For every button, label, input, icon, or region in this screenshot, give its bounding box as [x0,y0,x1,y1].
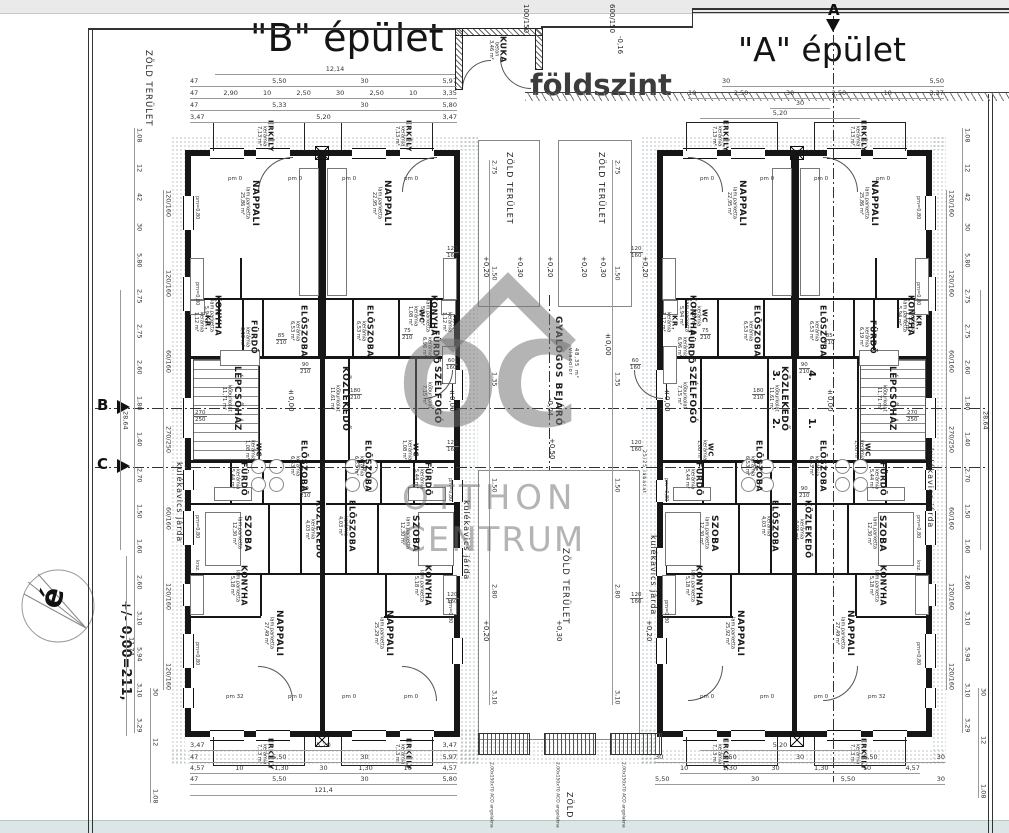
window [452,638,463,664]
dim-bottom: 160 [447,447,458,453]
dimension-value: 2,60 [136,575,143,589]
dim-bottom: 250 [907,417,918,423]
dimension-value: 121,4 [314,787,333,794]
room-area: 11,71 m² [220,366,226,431]
dimension-value: 1,30 [274,765,288,772]
aco-label: 2,00x150x70 ACO angolakna [620,762,625,828]
door-arc [462,60,491,89]
north-letter: é [33,583,72,612]
property-boundary [692,8,693,28]
room-label: KÖZLEKEDŐkerámia4,03 m² [792,500,813,559]
room-label: FÜRDŐkerámia5,44 m² [683,462,704,496]
dimension-value: 5,20 [316,114,330,121]
room-label: ERKÉLYkerámia7,13 m² [710,120,730,152]
parapet-label: pm 0 [760,176,774,182]
parapet-label: pm 0 [228,176,242,182]
room-area: 1,08 m² [243,440,249,460]
room-area: 1,08 m² [852,440,858,460]
dimension-value: 60/160 [165,507,172,530]
opening-dimension: 270250 [194,410,207,423]
dimension-value: 42 [964,193,971,201]
room-name: NAPPALI [382,180,392,226]
dimension-value: 2,90 [223,90,237,97]
dim-top: 120 [446,246,459,253]
door-arc [634,370,663,399]
dimension-value: 42 [136,193,143,201]
balcony [341,122,433,151]
dimension-value: 2,80 [491,584,498,598]
room-label: WCkerámia1,08 m² [689,306,709,326]
dimension-value: 3,47 [443,742,457,749]
room-label: ELŐSZOBAkerámia6,53 m² [741,305,762,357]
opening-dimension: 75210 [700,328,711,341]
dimension-value: 12,14 [326,66,345,73]
dim-top: 180 [752,388,765,395]
dimension-value: 1,80 [136,396,143,410]
dim-bottom: 210 [700,335,711,341]
dimension-value: 5,80 [442,776,456,783]
dimension-column: 2,751,501,351,502,803,10 [489,160,498,705]
dimension-value: 1,08 [964,128,971,142]
dim-top: 180 [349,388,362,395]
room-area: 12,30 m² [230,515,236,552]
dimension-value: 2,60 [964,575,971,589]
wall [738,503,740,573]
window [656,638,667,664]
dimension-value: 5,20 [316,742,330,749]
dimension-value: 2,50 [296,90,310,97]
room-label: ERKÉLYkerámia7,13 m² [848,120,868,152]
room-area: 7,13 m² [393,120,399,152]
dimension-value: 2,75 [614,160,621,174]
level-marker: ±0,00 [826,388,834,412]
room-label: ELŐSZOBAkerámia4,03 m² [336,500,357,552]
dimension-value: 3,10 [136,611,143,625]
wall [853,298,855,356]
section-arrow [826,19,840,32]
opening-dimension: 75210 [402,328,413,341]
property-boundary [92,28,93,833]
parapet-label: pm=0,80 [663,478,669,501]
dim-bottom: 210 [350,395,361,401]
room-area: 4,03 m² [336,500,342,552]
dimension-value: 120/160 [948,190,955,217]
level-marker: -0,16 [616,36,624,54]
dimension-value: 30 [360,102,368,109]
site-label: ZÖLD TERÜLET [597,152,606,225]
dimension-column: 2,751,501,351,502,803,10 [612,160,621,705]
window [452,480,463,502]
room-label: ERKÉLYkerámia7,13 m² [255,120,275,152]
room-area: 11,61 m² [328,366,334,431]
dimension-value: 11,74 [128,637,135,656]
room-name: SZOBA [709,515,719,552]
dimension-value: 10 [884,90,892,97]
wall [384,616,454,618]
room-area: 5,18 m² [412,565,418,606]
dimension-value: 47 [190,754,198,761]
dimension-row: 5,20 [700,742,860,751]
room-name: NAPPALI [735,610,745,656]
site-label: ZÖLD TERÜLET [143,50,153,127]
dimension-value: 47 [190,78,198,85]
dimension-value: 2,50 [832,90,846,97]
dimension-value: 30 [152,688,159,696]
dimension-value: 30 [722,78,730,85]
dimension-value: 5,20 [773,742,787,749]
wall [262,298,264,356]
door-arc [258,157,293,192]
dim-top: 85 [824,333,835,340]
room-area: 25,86 m² [238,180,244,226]
site-label: kulékavics járda [926,448,935,528]
dimension-value: 1,50 [964,504,971,518]
room-name: NAPPALI [250,180,260,226]
dimension-value: 30 [796,754,804,761]
room-area: 5,94 m² [895,295,901,336]
dimension-value: 28,64 [982,411,989,430]
dimension-value: 5,50 [841,776,855,783]
chimney-shaft [790,146,804,160]
building-a-title: "A" épület [738,30,906,69]
dim-top: 90 [300,362,311,369]
dimension-column: 28,64 [980,290,989,550]
parapet-label: pm=0,80 [194,515,200,538]
opening-dimension: 90210 [300,362,311,375]
room-name: SZÉLFOGÓ [687,366,697,424]
opening-dimension: 60160 [630,358,641,371]
room-label: NAPPALIlam.parketta22,95 m² [370,180,392,226]
dimension-value: 5,50 [930,78,944,85]
parapet-label: pm 0 [342,176,356,182]
parapet-label: pm=0,80 [915,282,921,305]
room-area: 25,92 m² [723,610,729,656]
furniture [190,575,204,615]
dim-top: 90 [300,486,311,493]
dimension-value: 30 [319,765,327,772]
dimension-value: 3,10 [491,690,498,704]
parapet-label: pm 0 [404,694,418,700]
dimension-value: 3,47 [190,742,204,749]
room-area: 6,53 m² [288,305,294,357]
dimension-row: 3,475,203,47 [190,742,457,751]
room-area: 7,13 m² [710,120,716,152]
dimension-column: 11,74 [126,556,135,736]
dim-top: 120 [630,246,643,253]
wall [717,298,719,356]
dimension-value: 30 [751,776,759,783]
property-boundary [692,8,1009,10]
dimension-row: 475,33305,80 [190,102,457,111]
room-name: SZOBA [410,515,420,552]
aco-type: ACO [620,793,625,803]
room-name: NAPPALI [737,180,747,226]
room-name: SZOBA [877,515,887,552]
dimension-value: 5,50 [272,78,286,85]
dimension-value: 3,10 [964,611,971,625]
parapet-label: pm=0,80 [663,600,669,623]
room-area: 12,30 m² [697,515,703,552]
room-area: 5,44 m² [412,462,418,496]
furniture [418,512,454,566]
parapet-label: pm=0,80 [194,282,200,305]
opening-dimension: 60160 [446,358,457,371]
level-marker: +0,30 [516,256,524,277]
dimension-value: 3,10 [964,683,971,697]
aco-kind: angolakna [620,804,625,827]
room-area: 27,49 m² [262,610,268,656]
dimension-value: 5,50 [863,754,877,761]
dimension-value: 30 [136,223,143,231]
dimension-value: 60/160 [165,350,172,373]
dimension-value: 10 [409,90,417,97]
room-area: 6,96 m² [420,330,426,364]
furniture [665,512,701,566]
window [183,634,194,668]
room-label: SZOBAlam.parketta12,30 m² [398,515,420,552]
wall [191,298,454,300]
dimension-value: 1,08 [136,128,143,142]
parapet-label: pm=0,80 [915,196,921,219]
room-label: WCkerámia1,08 m² [852,440,872,460]
dimension-value: 120/160 [165,663,172,690]
level-marker: ±0,00 [448,388,456,412]
bottom-bar [0,820,1009,833]
parapet-label: pm 0 [760,694,774,700]
room-name: KONYHA [695,565,704,606]
dim-bottom: 210 [799,369,810,375]
room-label: FÜRDŐkerámia6,96 m² [420,330,441,364]
parapet-label: pm 0 [876,176,890,182]
chair [835,477,850,492]
dimension-column: 120/160120/16060/160270/25060/160120/160… [163,190,172,690]
dim-bottom: 160 [447,253,458,259]
room-area: 6,96 m² [675,330,681,364]
property-boundary [992,94,993,833]
room-label: ELŐSZOBAkerámia4,03 m² [759,500,780,552]
kuka-wall [535,28,543,70]
opening-dimension: 120160 [630,592,643,605]
dimension-value: 2,50 [369,90,383,97]
parapet-label: pm 0 [700,694,714,700]
dimension-value: 2,70 [136,468,143,482]
wall [847,503,849,573]
room-name: KONYHA [424,565,433,606]
site-label: 48,35 m² [573,348,579,379]
dim-top: 120 [630,440,643,447]
dimension-value: 30 [980,688,987,696]
furniture [299,168,319,296]
room-area: 5,44 m² [867,462,873,496]
parapet-label: pm=0,80 [915,515,921,538]
room-label: ELŐSZOBAkerámia6,53 m² [743,440,764,492]
dim-top: 90 [799,486,810,493]
level-marker: 600/150 [608,4,616,33]
section-letter-a: A [828,1,840,19]
room-label: WCkerámia1,08 m² [400,440,420,460]
dim-top: 60 [446,358,457,365]
room-area: 7,15 m² [675,366,681,424]
dimension-value: 1,60 [136,539,143,553]
room-area: 12,30 m² [398,515,404,552]
aco-drain [610,733,662,755]
room-label: KONYHAlam.parketta5,18 m² [867,565,888,606]
dim-top: 120 [446,440,459,447]
dimension-value: 10 [235,765,243,772]
dimension-value: 2,60 [136,360,143,374]
wall [856,616,926,618]
room-label: KR.kerámia1,12 m² [440,312,460,332]
dimension-value: 12 [136,164,143,172]
room-area: 6,53 m² [352,440,358,492]
room-label: KÖZLEKEDŐkerámia4,03 m² [303,500,324,559]
dim-bottom: 160 [447,599,458,605]
dimension-value: 5,80 [964,253,971,267]
wall [377,503,379,573]
room-area: 4,03 m² [303,500,309,559]
dimension-value: 1,80 [964,396,971,410]
dim-top: 60 [630,358,641,365]
room-name: NAPPALI [845,610,855,656]
dimension-value: 4,57 [190,765,204,772]
dimension-row: 472,90102,50302,50103,35 [190,90,457,99]
room-area: 4,03 m² [759,500,765,552]
room-area: 6,19 m² [857,320,863,354]
dimension-value: 47 [190,102,198,109]
room-label: FÜRDŐkerámia5,44 m² [228,462,249,496]
room-name: KONYHA [214,295,223,336]
room-label: KONYHAlam.parketta5,18 m² [228,565,249,606]
parapet-label: pm 32 [226,694,244,700]
dimension-row: 475,50305,97 [190,754,457,763]
level-marker: 100/150 [522,4,530,33]
dimension-value: 10 [863,765,871,772]
aco-size: 2,00x150x70 [488,762,493,792]
dimension-value: 28,64 [122,411,129,430]
site-label: kulékavics járda [649,535,658,615]
dim-bottom: 210 [300,369,311,375]
chimney-shaft [315,146,329,160]
dimension-value: 1,50 [614,478,621,492]
room-area: 6,53 m² [354,305,360,357]
dim-bottom: 250 [195,417,206,423]
dimension-value: 12 [152,738,159,746]
dimension-row: 3,475,203,47 [190,114,457,123]
parapet-label: pm 32 [868,694,886,700]
dimension-value: 30 [360,776,368,783]
balcony [686,122,778,151]
dimension-row: 305,50 [722,78,944,87]
opening-dimension: 90210 [799,362,810,375]
dimension-value: 3,47 [443,114,457,121]
dim-top: 85 [276,333,287,340]
dimension-value: 1,40 [136,432,143,446]
wall [791,150,799,358]
dimension-value: 1,60 [964,539,971,553]
dimension-value: 30 [771,765,779,772]
dimension-value: 2,70 [964,468,971,482]
dimension-row: 12,14 [215,66,455,75]
building-b-title: "B" épület [250,16,444,60]
room-label: ELŐSZOBAkerámia6,53 m² [288,440,309,492]
parapet-label: pm 0 [288,694,302,700]
dimension-value: 5,50 [722,754,736,761]
dim-top: 120 [630,592,643,599]
dimension-column: 30121,08 [978,688,987,798]
dimension-value: 5,97 [442,754,456,761]
room-area: 5,44 m² [683,462,689,496]
wall [663,298,926,300]
room-area: 6,19 m² [238,320,244,354]
opening-dimension: 90210 [799,486,810,499]
wall [191,616,261,618]
dimension-column: 120/160120/16060/160270/25060/160120/160… [946,190,955,690]
dimension-row: 475,50305,97 [190,78,457,87]
dimension-value: 2,75 [491,160,498,174]
dimension-row: 30 [770,100,830,109]
room-label: SZOBAlam.parketta12,30 m² [230,515,252,552]
room-area: 1,08 m² [406,306,412,326]
dimension-value: 60/160 [948,350,955,373]
room-name: NAPPALI [384,610,394,656]
room-label: NAPPALIlam.parketta27,49 m² [833,610,855,656]
opening-dimension: 85210 [276,333,287,346]
room-label: WCkerámia1,08 m² [243,440,263,460]
opening-dimension: 180210 [752,388,765,401]
level-marker: ±0,00 [604,332,612,356]
dimension-value: 1,08 [980,784,987,798]
dimension-value: 1,50 [136,504,143,518]
dimension-row: 475,50305,80 [190,776,457,785]
dimension-value: 3,10 [614,690,621,704]
dimension-value: 5,80 [442,102,456,109]
room-label: LÉPCSŐHÁZkőburkolat11,71 m² [875,366,897,431]
level-marker: ±0,00 [287,388,295,412]
window [183,196,194,230]
window [183,470,194,490]
room-area: 11,71 m² [875,366,881,431]
dimension-row: 102,50302,50103,37 [688,90,944,99]
parapet-label: pm 0 [814,176,828,182]
dimension-value: 2,60 [964,360,971,374]
aco-type: ACO [488,793,493,803]
dimension-value: 5,50 [272,776,286,783]
dimension-value: 30 [360,78,368,85]
dim-bottom: 210 [753,395,764,401]
dimension-value: 30 [937,776,945,783]
room-label: ELŐSZOBAkerámia6,53 m² [807,440,828,492]
dimension-value: 10 [680,765,688,772]
dimension-value: 30 [336,90,344,97]
window [183,688,194,708]
room-name: NAPPALI [274,610,284,656]
aco-label: 2,00x150x70 ACO angolakna [554,762,559,828]
dimension-value: 3,35 [442,90,456,97]
room-label: FÜRDŐkerámia5,44 m² [412,462,433,496]
opening-dimension: 180210 [349,388,362,401]
chair [269,477,284,492]
room-label: NAPPALIlam.parketta25,86 m² [857,180,879,226]
dimension-value: 2,75 [964,289,971,303]
property-boundary [88,28,89,833]
dimension-value: 3,29 [136,718,143,732]
room-label: LÉPCSŐHÁZkőburkolat11,71 m² [220,366,242,431]
dim-top: 90 [799,362,810,369]
parapet-label: pm=0,80 [915,642,921,665]
dimension-row: 4,57101,30301,30104,57 [190,765,457,774]
dimension-value: 10 [263,90,271,97]
room-label: SZOBAlam.parketta12,30 m² [697,515,719,552]
